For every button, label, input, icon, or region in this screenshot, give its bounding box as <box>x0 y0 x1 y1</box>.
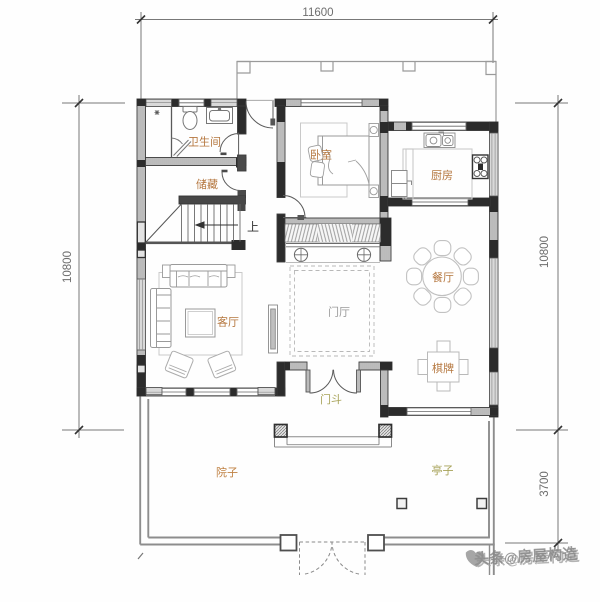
svg-text:10800: 10800 <box>62 251 74 283</box>
svg-text:3700: 3700 <box>539 471 551 497</box>
svg-text:门厅: 门厅 <box>328 305 350 319</box>
svg-text:亭子: 亭子 <box>432 463 454 477</box>
svg-text:10800: 10800 <box>539 236 551 268</box>
svg-text:卫生间: 卫生间 <box>188 135 221 149</box>
svg-text:院子: 院子 <box>216 465 238 479</box>
svg-text:客厅: 客厅 <box>217 315 239 329</box>
svg-text:厨房: 厨房 <box>431 169 453 182</box>
svg-text:上: 上 <box>247 220 259 234</box>
svg-text:卧室: 卧室 <box>310 148 332 162</box>
svg-text:11600: 11600 <box>302 7 333 19</box>
svg-text:餐厅: 餐厅 <box>432 270 454 284</box>
svg-text:储藏: 储藏 <box>196 177 218 191</box>
svg-text:门斗: 门斗 <box>320 392 342 406</box>
svg-text:棋牌: 棋牌 <box>432 361 454 375</box>
